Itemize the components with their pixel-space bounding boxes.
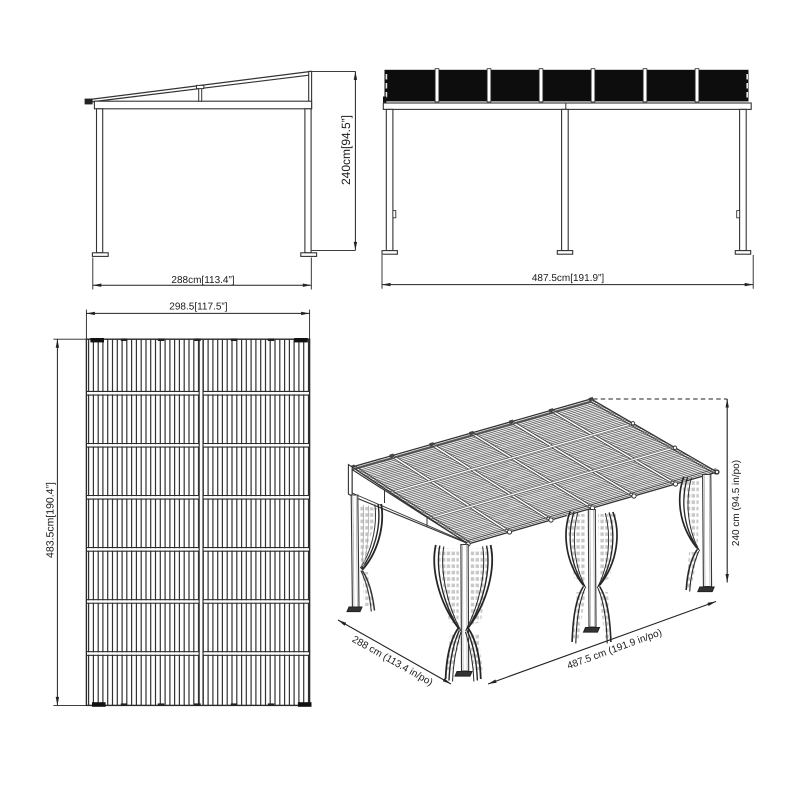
svg-text:487.5cm[191.9”]: 487.5cm[191.9”] [532, 273, 604, 284]
svg-text:288cm[113.4”]: 288cm[113.4”] [171, 275, 234, 286]
svg-text:240 cm (94.5 in/po): 240 cm (94.5 in/po) [731, 460, 742, 546]
svg-text:240cm[94.5”]: 240cm[94.5”] [339, 115, 353, 185]
svg-text:298.5[117.5”]: 298.5[117.5”] [169, 302, 227, 313]
svg-text:483.5cm[190.4”]: 483.5cm[190.4”] [45, 482, 57, 558]
